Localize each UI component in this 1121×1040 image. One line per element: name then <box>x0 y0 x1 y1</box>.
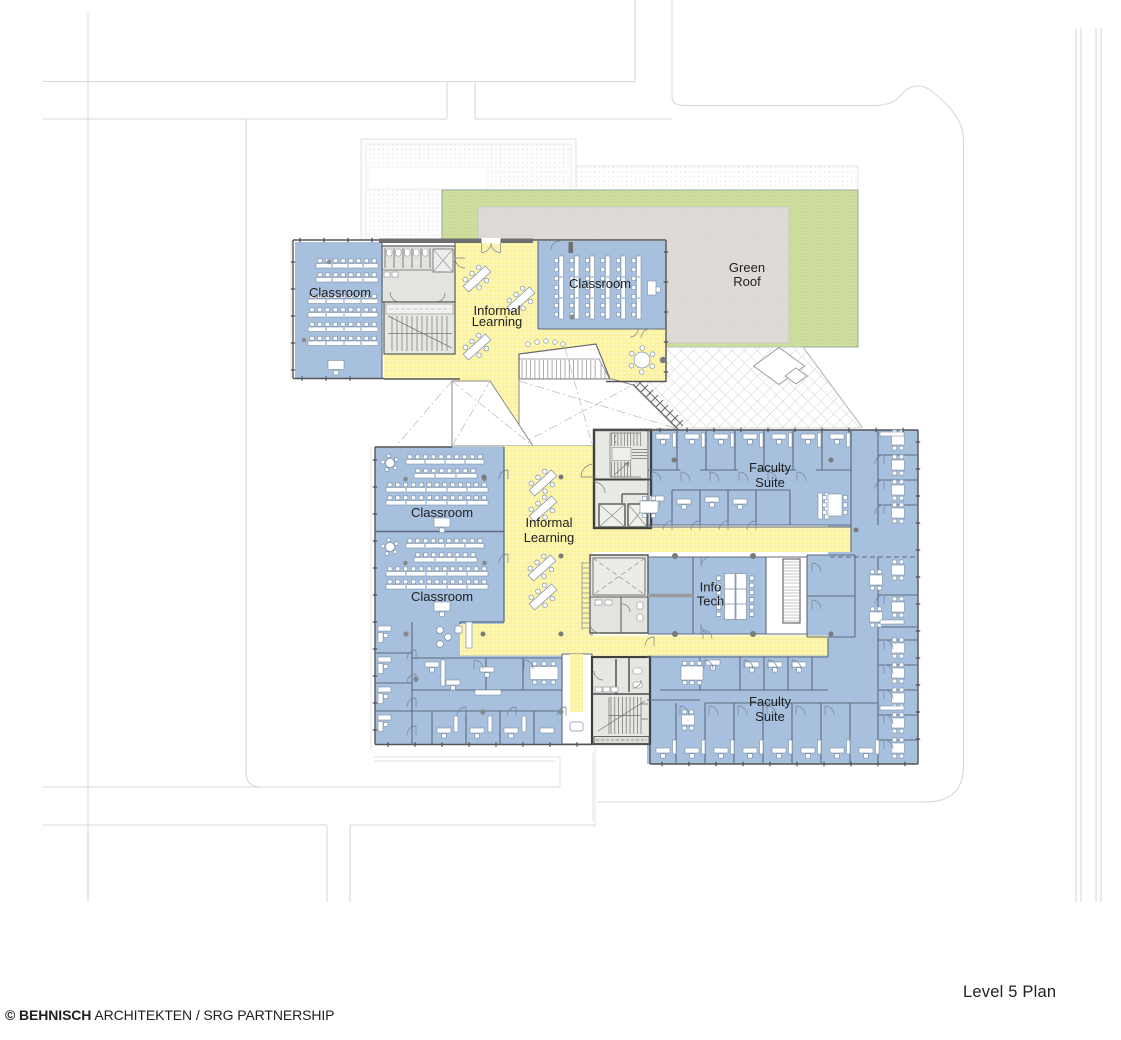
svg-text:Classroom: Classroom <box>569 276 631 291</box>
svg-text:Classroom: Classroom <box>309 285 371 300</box>
svg-text:Tech: Tech <box>697 594 724 609</box>
svg-text:© BEHNISCH ARCHITEKTEN / SRG P: © BEHNISCH ARCHITEKTEN / SRG PARTNERSHIP <box>5 1007 334 1023</box>
svg-text:Learning: Learning <box>472 314 523 329</box>
svg-text:Roof: Roof <box>733 274 761 289</box>
svg-text:Faculty: Faculty <box>749 694 791 709</box>
svg-text:Level 5 Plan: Level 5 Plan <box>963 983 1056 1001</box>
svg-text:Green: Green <box>729 260 765 275</box>
svg-text:Faculty: Faculty <box>749 460 791 475</box>
svg-text:Classroom: Classroom <box>411 505 473 520</box>
svg-text:Suite: Suite <box>755 709 785 724</box>
svg-text:Suite: Suite <box>755 475 785 490</box>
svg-text:Info: Info <box>700 580 722 595</box>
svg-text:Classroom: Classroom <box>411 589 473 604</box>
svg-text:Learning: Learning <box>524 530 575 545</box>
svg-text:Informal: Informal <box>526 515 573 530</box>
